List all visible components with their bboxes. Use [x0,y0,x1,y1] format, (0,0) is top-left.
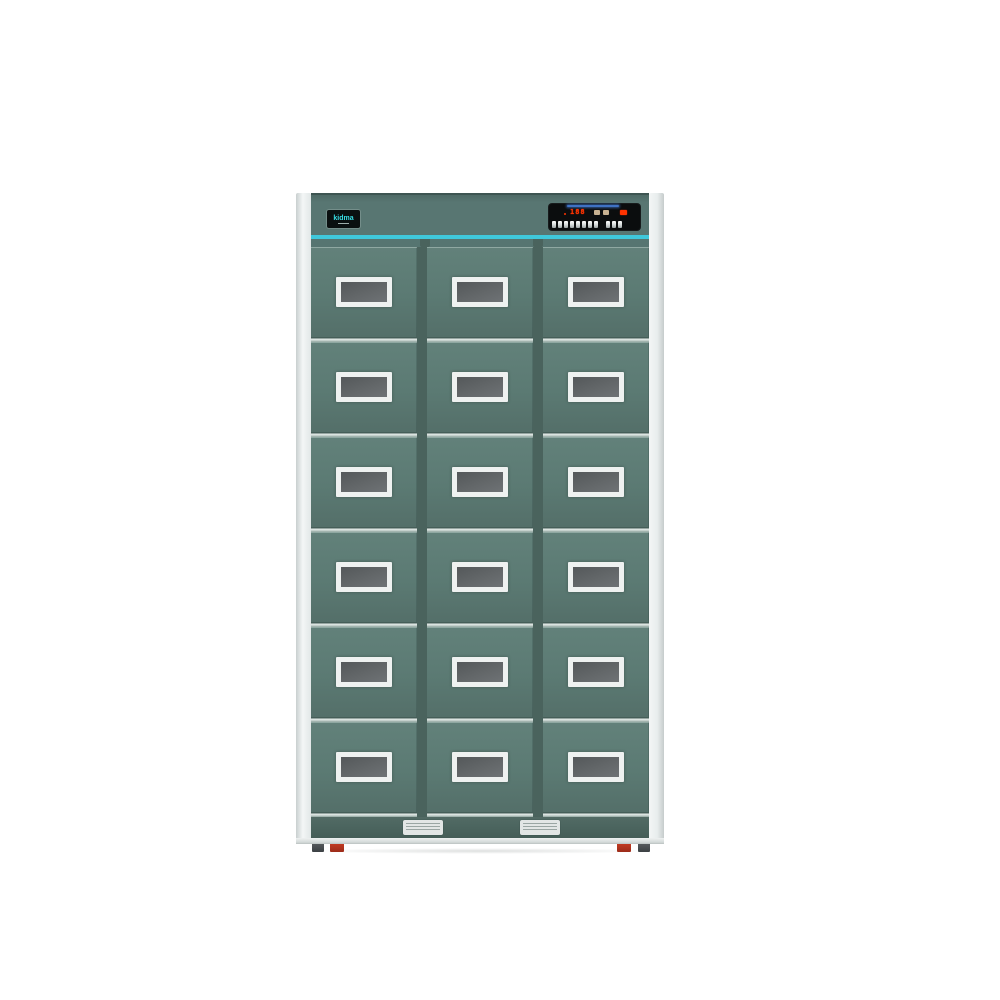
locker-cell [311,437,417,532]
foot-red-left [330,844,344,852]
locker-door [427,627,533,717]
foot-dark-right [638,844,650,852]
door-window [568,467,624,497]
brand-underline [338,223,349,224]
locker-cell [311,722,417,817]
window-glass [341,282,387,302]
locker-cabinet: kidma 188 [296,193,664,852]
side-frame-right [649,193,664,840]
window-glass [573,662,619,682]
locker-cell [427,722,533,817]
locker-cell [427,342,533,437]
locker-door [311,722,417,812]
panel-button [588,221,592,228]
door-window [452,752,508,782]
panel-button-row [552,221,637,228]
window-glass [573,472,619,492]
door-window [452,372,508,402]
locker-door [311,342,417,432]
panel-button [564,221,568,228]
vent-slats [406,823,440,832]
door-window [452,467,508,497]
locker-cell [427,247,533,342]
locker-door [311,437,417,527]
door-window [452,277,508,307]
panel-button [618,221,622,228]
panel-button [582,221,586,228]
display-glow [567,205,619,207]
door-window [336,467,392,497]
door-window [568,277,624,307]
locker-cell [427,437,533,532]
window-glass [457,472,503,492]
window-glass [457,377,503,397]
window-glass [457,757,503,777]
window-glass [457,662,503,682]
locker-door [427,437,533,527]
door-window [568,657,624,687]
foot-red-right [617,844,631,852]
door-window [336,657,392,687]
locker-cell [427,627,533,722]
locker-door [543,437,649,527]
locker-door [543,247,649,337]
vent-grille [403,820,443,835]
window-glass [341,757,387,777]
locker-cell [543,722,649,817]
locker-door [543,342,649,432]
panel-button [576,221,580,228]
window-glass [457,282,503,302]
locker-door [543,627,649,717]
window-glass [341,567,387,587]
divider-notch [533,239,543,247]
window-glass [341,377,387,397]
image-canvas: kidma 188 [148,119,807,879]
locker-door [311,532,417,622]
door-window [452,657,508,687]
vent-slats [523,823,557,832]
locker-cell [311,532,417,627]
panel-button [612,221,616,228]
brand-logo-text: kidma [333,215,353,222]
locker-cell [543,532,649,627]
window-glass [573,567,619,587]
locker-cell [543,247,649,342]
locker-door [427,247,533,337]
locker-door [427,532,533,622]
side-frame-left [296,193,311,840]
locker-cell [311,247,417,342]
bottom-trim [296,838,664,844]
locker-cell [543,627,649,722]
window-glass [341,662,387,682]
panel-button [594,221,598,228]
locker-grid [311,247,649,817]
control-panel: 188 [549,204,640,230]
locker-door [543,722,649,812]
locker-cell [311,627,417,722]
status-icon-a [594,210,600,215]
led-display-reading: 188 [570,208,586,216]
panel-button [552,221,556,228]
window-glass [573,757,619,777]
door-window [568,562,624,592]
locker-door [427,722,533,812]
window-glass [457,567,503,587]
locker-cell [543,342,649,437]
foot-dark-left [312,844,324,852]
window-glass [341,472,387,492]
door-window [336,372,392,402]
locker-door [311,247,417,337]
brand-badge: kidma [327,210,360,228]
door-window [452,562,508,592]
panel-button [570,221,574,228]
vent-grille [520,820,560,835]
panel-button [558,221,562,228]
locker-cell [427,532,533,627]
header-panel: kidma 188 [311,193,649,235]
door-window [568,372,624,402]
door-window [568,752,624,782]
base-panel [311,817,649,838]
locker-door [543,532,649,622]
floor-shadow [306,848,654,854]
panel-button [606,221,610,228]
door-window [336,277,392,307]
door-window [336,752,392,782]
power-indicator [620,210,627,215]
window-glass [573,377,619,397]
status-icon-b [603,210,609,215]
locker-door [427,342,533,432]
status-led-dot [564,213,566,215]
locker-cell [543,437,649,532]
locker-cell [311,342,417,437]
locker-door [311,627,417,717]
divider-notch [420,239,430,247]
window-glass [573,282,619,302]
header-lower-strip [311,239,649,247]
door-window [336,562,392,592]
